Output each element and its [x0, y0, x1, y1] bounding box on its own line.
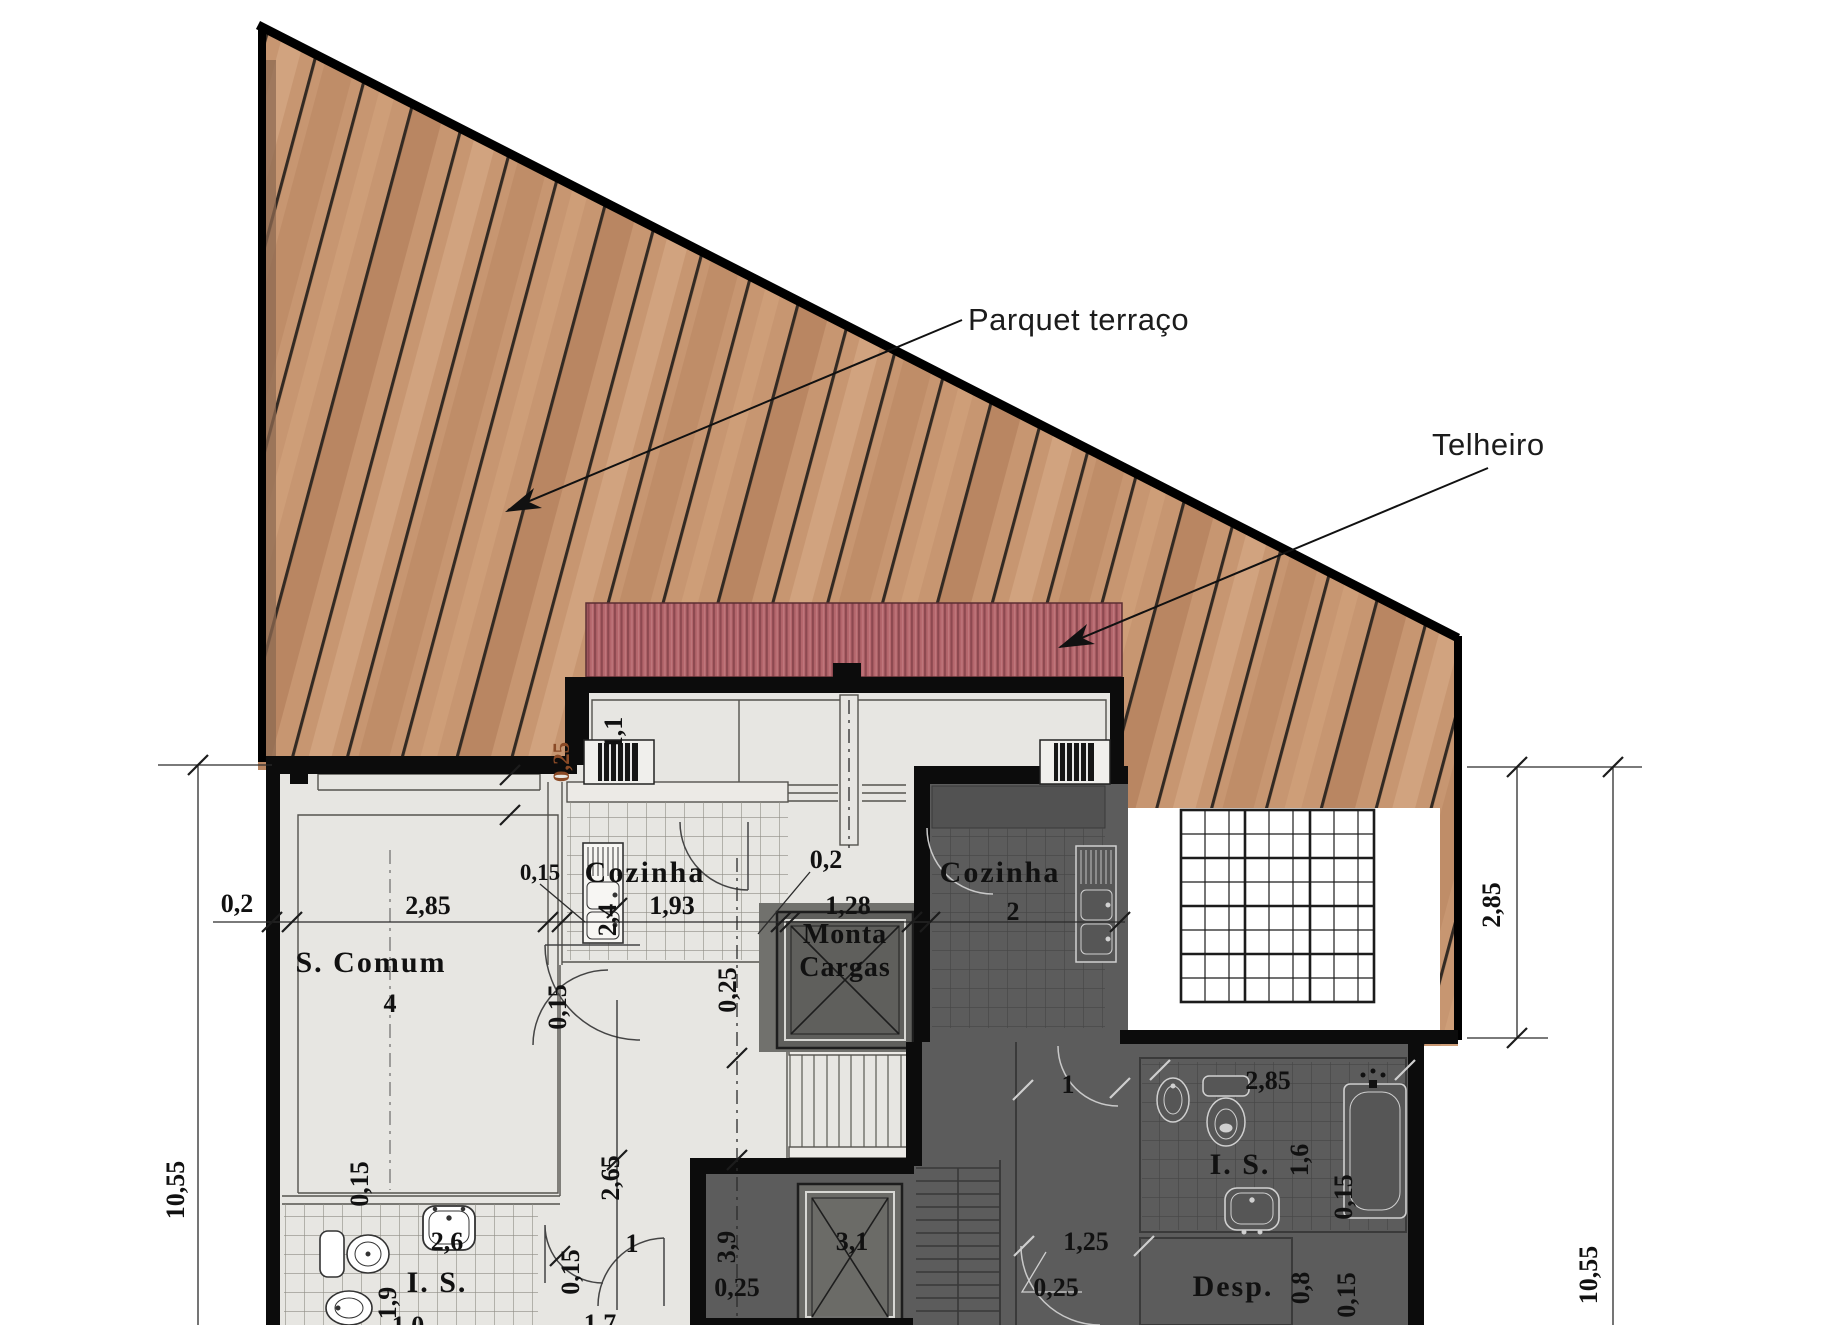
- dim-elevator: 3,1: [836, 1227, 869, 1256]
- room-cozinha-left: Cozinha: [585, 856, 706, 889]
- dim-mid-wall: 0,25: [713, 967, 742, 1013]
- wall-dark-west-lower: [906, 1042, 922, 1166]
- dim-is-right-wall-b: 0,15: [1332, 1272, 1361, 1318]
- dim-dark-door: 1,25: [1063, 1227, 1109, 1256]
- dim-kitchen-width: 1,93: [649, 891, 695, 920]
- dim-bottom-b: 1,7: [584, 1309, 617, 1325]
- wall-center-right: [1110, 677, 1124, 772]
- dim-wall-left: 0,2: [221, 889, 254, 918]
- dim-deck-right: 2,85: [1477, 882, 1506, 928]
- appliance-box-right: [1040, 740, 1110, 784]
- dim-corridor-wall: 0,15: [556, 1249, 585, 1295]
- kitchen-sink-right: [1076, 846, 1116, 962]
- wall-dark-west: [914, 766, 930, 1042]
- room-desp: Desp.: [1193, 1270, 1274, 1303]
- skylight-panel: [1128, 808, 1440, 1032]
- floor-plan-drawing: Parquet terraço Telheiro S. Comum 4 Cozi…: [0, 0, 1842, 1325]
- bidet-right: [1157, 1078, 1189, 1122]
- floor-plan-page: Parquet terraço Telheiro S. Comum 4 Cozi…: [0, 0, 1842, 1325]
- dim-height-left: 10,55: [161, 1161, 190, 1220]
- dim-scomum-width: 2,85: [405, 891, 451, 920]
- dim-is-right-wall-a: 0,15: [1329, 1174, 1358, 1220]
- dim-kitchen-depth: 2,4: [593, 904, 622, 937]
- dim-cozinha-right-2: 2: [1007, 897, 1020, 926]
- dim-is-left-sink: 2,6: [431, 1227, 464, 1256]
- wall-west: [266, 756, 280, 1325]
- dim-bottom-a: 1,0: [392, 1311, 425, 1325]
- wall-north-center: [577, 677, 1124, 693]
- room-is-right: I. S.: [1210, 1148, 1271, 1181]
- dim-corridor: 2,65: [596, 1155, 625, 1201]
- dim-dark-hall-door: 1: [1062, 1070, 1075, 1099]
- wall-dark-east: [1408, 1042, 1424, 1325]
- dim-kitchen-wall: 0,15: [520, 860, 560, 885]
- room-monta-line1: Monta: [803, 919, 887, 950]
- dim-is-right-width: 2,85: [1245, 1066, 1291, 1095]
- dim-is-left-wall: 0,15: [345, 1161, 374, 1207]
- kitchen-right-counter: [932, 786, 1105, 828]
- label-parquet-terraco: Parquet terraço: [968, 302, 1189, 337]
- room-cozinha-right: Cozinha: [940, 856, 1061, 889]
- dim-height-right: 10,55: [1574, 1246, 1603, 1305]
- dim-desp-width: 0,8: [1286, 1272, 1315, 1305]
- toilet-right: [1203, 1076, 1249, 1146]
- room-s-comum: S. Comum: [295, 946, 446, 979]
- wall-skylight-south: [1120, 1030, 1458, 1044]
- dim-corridor-door: 1: [626, 1229, 639, 1258]
- dim-top-wall: 0,25: [549, 742, 574, 782]
- dim-is-right-depth: 1,6: [1285, 1144, 1314, 1177]
- door-pillar-notch: [290, 770, 308, 784]
- dim-stair-run: 3,9: [712, 1231, 741, 1264]
- wall-north-left: [266, 756, 577, 774]
- room-monta-line2: Cargas: [799, 952, 891, 983]
- bidet-left: [326, 1291, 372, 1325]
- room-is-left: I. S.: [407, 1266, 468, 1299]
- dim-top-window: 1,1: [599, 717, 628, 750]
- dim-monta-wall: 0,2: [810, 845, 843, 874]
- dim-stair-wall: 0,25: [714, 1273, 760, 1302]
- label-telheiro: Telheiro: [1432, 427, 1545, 462]
- wall-stairwell-v: [690, 1158, 706, 1325]
- dim-dark-wall: 0,25: [1033, 1273, 1079, 1302]
- chimney-notch: [833, 663, 861, 679]
- dim-kitchen-wall-s: 0,15: [543, 984, 572, 1030]
- skylight: [1128, 808, 1440, 1032]
- sink-right: [1225, 1188, 1279, 1234]
- dim-monta-width: 1,28: [825, 891, 871, 920]
- dim-s-comum-4: 4: [384, 989, 397, 1018]
- wall-stairwell-bottom: [700, 1318, 913, 1325]
- wall-stairwell-h: [690, 1158, 914, 1174]
